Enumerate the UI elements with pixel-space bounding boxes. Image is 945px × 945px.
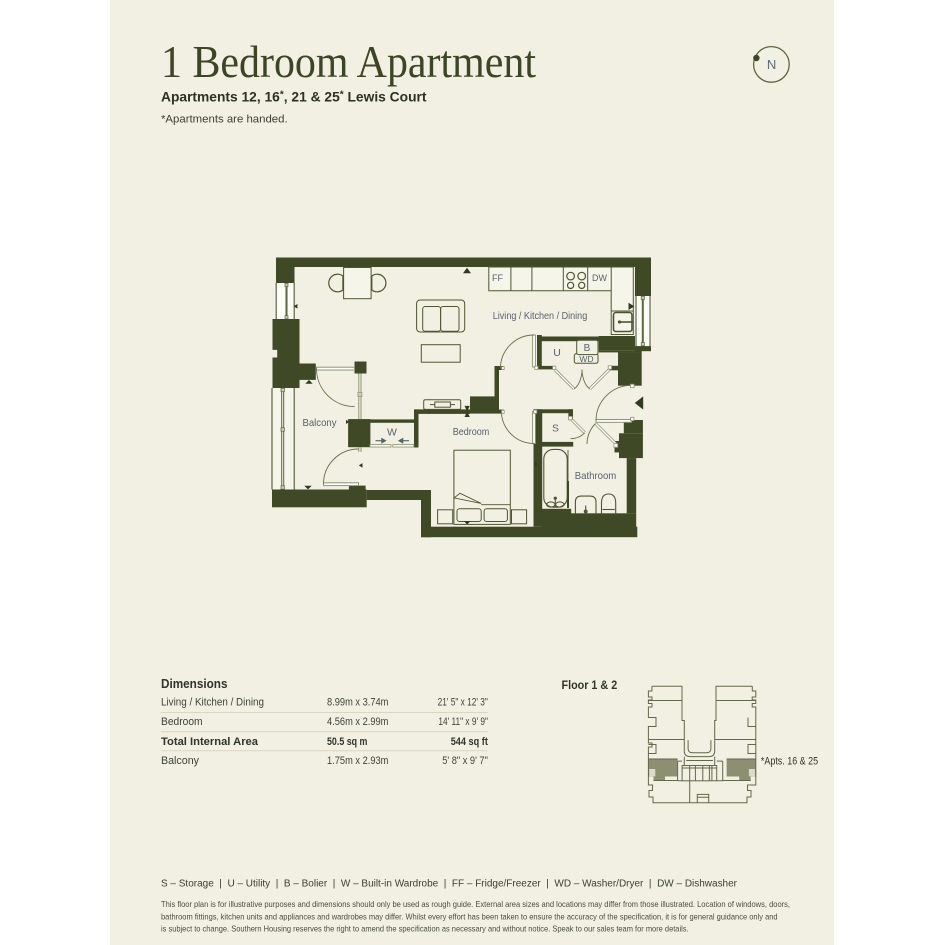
svg-text:*Apartments are handed.: *Apartments are handed.: [161, 114, 288, 126]
svg-text:FF: FF: [492, 273, 503, 283]
svg-text:Floor 1 & 2: Floor 1 & 2: [562, 678, 618, 692]
svg-text:Balcony: Balcony: [161, 755, 199, 767]
svg-text:Dimensions: Dimensions: [161, 677, 228, 691]
svg-text:Bedroom: Bedroom: [161, 716, 203, 728]
svg-text:WD: WD: [579, 354, 593, 364]
svg-text:Balcony: Balcony: [303, 418, 338, 429]
svg-text:1.75m x 2.93m: 1.75m x 2.93m: [327, 755, 388, 767]
svg-text:DW: DW: [592, 273, 607, 283]
svg-text:S: S: [552, 423, 559, 435]
svg-text:544 sq ft: 544 sq ft: [451, 736, 488, 748]
svg-text:U: U: [553, 347, 561, 359]
svg-text:bathroom fittings, kitchen uni: bathroom fittings, kitchen units and app…: [161, 912, 778, 922]
svg-text:Living / Kitchen / Dining: Living / Kitchen / Dining: [493, 311, 588, 322]
svg-text:1 Bedroom Apartment: 1 Bedroom Apartment: [161, 36, 536, 87]
svg-text:14' 11" x 9' 9": 14' 11" x 9' 9": [438, 716, 488, 728]
svg-text:Living / Kitchen / Dining: Living / Kitchen / Dining: [161, 696, 264, 708]
svg-text:8.99m x 3.74m: 8.99m x 3.74m: [327, 696, 388, 708]
svg-text:W: W: [387, 427, 397, 439]
svg-text:Bathroom: Bathroom: [575, 471, 617, 482]
svg-text:Bedroom: Bedroom: [453, 427, 490, 438]
svg-text:This floor plan is for illustr: This floor plan is for illustrative purp…: [161, 899, 790, 909]
svg-text:S – Storage | U – Utility |: S – Storage | U – Utility | B – Bolier |…: [161, 879, 738, 890]
svg-text:*Apts. 16 & 25: *Apts. 16 & 25: [761, 756, 818, 768]
svg-text:is subject to change. Southern: is subject to change. Southern Housing r…: [161, 924, 689, 934]
svg-text:21' 5" x 12' 3": 21' 5" x 12' 3": [438, 696, 488, 708]
svg-text:N: N: [767, 57, 776, 72]
svg-text:4.56m x 2.99m: 4.56m x 2.99m: [327, 716, 388, 728]
svg-text:5' 8" x 9' 7": 5' 8" x 9' 7": [442, 755, 488, 767]
svg-text:50.5 sq m: 50.5 sq m: [327, 736, 367, 748]
svg-text:Total Internal Area: Total Internal Area: [161, 736, 259, 748]
svg-text:Apartments 12, 16*, 21 & 25* L: Apartments 12, 16*, 21 & 25* Lewis Court: [161, 90, 427, 105]
svg-text:B: B: [584, 343, 591, 354]
